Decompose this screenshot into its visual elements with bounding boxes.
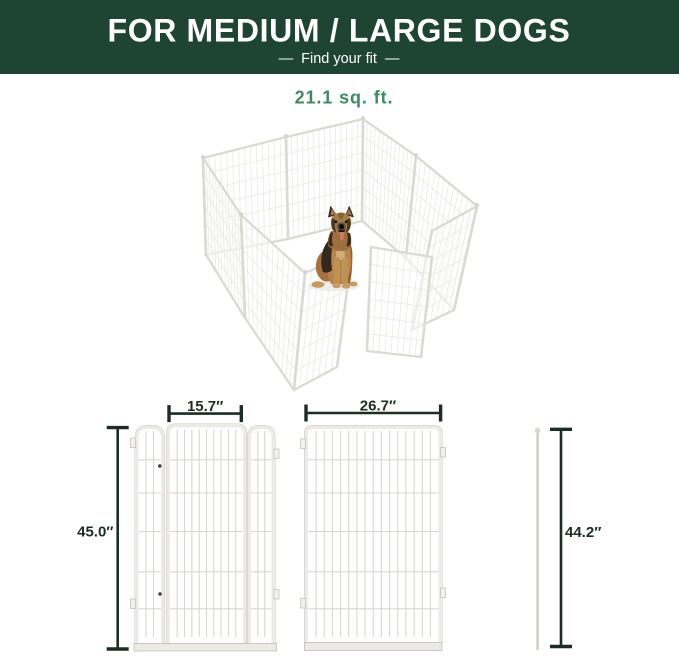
- svg-text:44.2″: 44.2″: [565, 524, 601, 541]
- svg-text:21.1 sq. ft.: 21.1 sq. ft.: [295, 88, 394, 108]
- svg-text:15.7″: 15.7″: [187, 398, 223, 415]
- svg-text:— Find your fit —: — Find your fit —: [279, 51, 400, 67]
- svg-text:26.7″: 26.7″: [360, 397, 396, 414]
- svg-text:FOR MEDIUM / LARGE DOGS: FOR MEDIUM / LARGE DOGS: [108, 13, 571, 49]
- svg-text:45.0″: 45.0″: [77, 524, 113, 541]
